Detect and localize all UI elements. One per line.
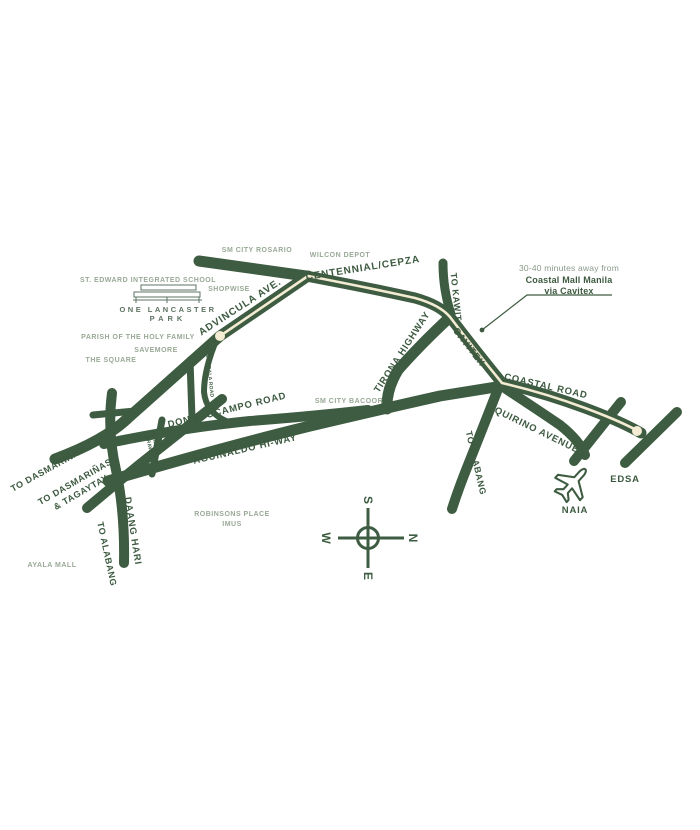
compass-letter-e: E [361, 572, 375, 580]
logo-text-line1: ONE LANCASTER [119, 305, 216, 314]
route-origin-dot [215, 331, 225, 341]
road-edsa-cross-2 [625, 412, 677, 463]
map-canvas: 30-40 minutes away from Coastal Mall Man… [0, 0, 700, 830]
callout-line1: 30-40 minutes away from [519, 263, 619, 273]
road-label-edsa: EDSA [610, 474, 640, 485]
landmark-label-sm-city-bacoor: SM CITY BACOOR [315, 398, 383, 405]
road-label-naia: NAIA [562, 505, 588, 516]
landmark-label-parish-holy-family: PARISH OF THE HOLY FAMILY [81, 334, 195, 341]
landmark-label-ayala-mall: AYALA MALL [28, 562, 77, 569]
logo-building-bar-bottom [134, 292, 200, 297]
road-connector-1 [190, 360, 192, 418]
logo-one-lancaster-park: ONE LANCASTER PARK [119, 285, 216, 323]
callout-dot [480, 328, 485, 333]
road-connector-2 [93, 411, 135, 415]
road-label-tirona: TIRONA HIGHWAY [372, 310, 433, 395]
route-end-dot [632, 426, 642, 436]
road-label-to-alabang-left: TO ALABANG [95, 521, 118, 587]
vicinity-map: 30-40 minutes away from Coastal Mall Man… [0, 0, 700, 830]
logo-text-line2: PARK [150, 314, 187, 323]
callout-leader-line [482, 295, 612, 330]
landmark-label-st-edward: ST. EDWARD INTEGRATED SCHOOL [80, 277, 216, 284]
callout-line2: Coastal Mall Manila [526, 275, 614, 285]
callout: 30-40 minutes away from Coastal Mall Man… [480, 263, 619, 332]
landmark-label-shopwise: SHOPWISE [208, 286, 250, 293]
road-centennial-cepza [306, 276, 450, 317]
compass-rose: S W N E [319, 496, 420, 580]
compass-letter-n: N [406, 534, 420, 543]
callout-line3: via Cavitex [544, 286, 593, 296]
logo-baseline [133, 297, 202, 303]
compass-cross [338, 508, 404, 568]
landmark-label-robinsons-line1: ROBINSONS PLACE [194, 511, 270, 518]
road-centennial-west [199, 261, 306, 276]
landmark-label-sm-city-rosario: SM CITY ROSARIO [222, 247, 292, 254]
landmark-label-wilcon-depot: WILCON DEPOT [310, 252, 371, 259]
compass-letter-w: W [319, 532, 333, 544]
logo-building-bar-top [141, 285, 196, 290]
landmark-label-the-square: THE SQUARE [86, 357, 137, 364]
compass-letter-s: S [361, 496, 375, 504]
landmark-label-savemore: SAVEMORE [134, 347, 178, 354]
landmark-label-robinsons-line2: IMUS [222, 521, 242, 528]
